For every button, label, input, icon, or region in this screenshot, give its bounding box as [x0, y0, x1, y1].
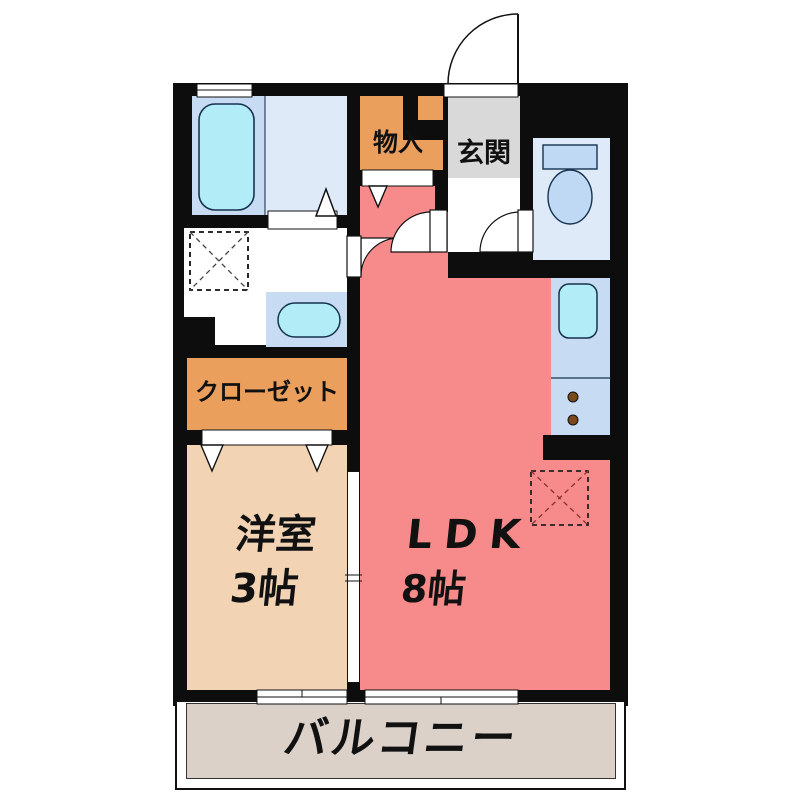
entrance-hallway [448, 178, 520, 252]
kitchen-wall-stub [543, 435, 612, 460]
floor-plan: 物入 玄関 クローゼット 洋室 3帖 LDK 8帖 バルコニー [0, 0, 800, 800]
ldk-name: LDK [404, 508, 535, 562]
room-toilet [533, 138, 610, 260]
room-bathroom-tub-area [192, 96, 265, 215]
kitchen-counter [551, 278, 610, 435]
entrance-door-swing [448, 14, 518, 84]
storage-label: 物入 [352, 130, 444, 156]
hall-ldk-wall-patch [435, 186, 448, 212]
entrance-label: 玄関 [448, 140, 520, 168]
washbasin-counter [266, 292, 347, 347]
western-room-size: 3帖 [227, 562, 313, 616]
room-washroom-notch [215, 317, 266, 345]
western-room-label: 洋室 3帖 [227, 508, 318, 616]
closet-label: クローゼット [187, 380, 347, 405]
western-room-name: 洋室 [233, 508, 319, 562]
room-ldk-right [543, 460, 610, 690]
ldk-label: LDK 8帖 [398, 508, 535, 616]
room-bathroom [265, 96, 347, 215]
room-ldk-center [448, 278, 551, 690]
sliding-door-partition [347, 471, 360, 683]
ldk-size: 8帖 [398, 562, 529, 616]
balcony-label: バルコニー [183, 716, 619, 762]
